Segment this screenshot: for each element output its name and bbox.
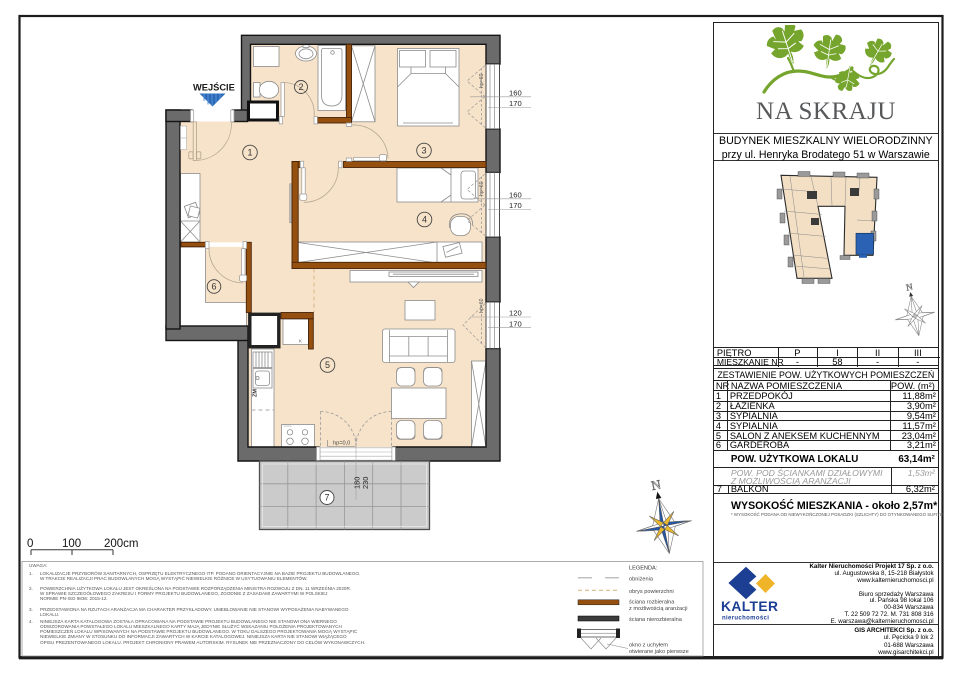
svg-text:170: 170 <box>509 99 522 108</box>
svg-text:100: 100 <box>62 538 81 550</box>
svg-text:N: N <box>650 476 663 493</box>
svg-text:hp=0,0: hp=0,0 <box>333 441 350 447</box>
svg-text:0: 0 <box>27 538 33 550</box>
svg-text:ZM: ZM <box>253 389 259 397</box>
svg-text:170: 170 <box>509 319 522 328</box>
svg-text:5: 5 <box>325 360 330 370</box>
svg-text:160: 160 <box>509 190 522 199</box>
svg-text:okno z uchyłem: okno z uchyłem <box>629 642 668 648</box>
svg-text:K: K <box>299 339 302 344</box>
svg-text:otwierane jako pierwsze: otwierane jako pierwsze <box>629 649 689 655</box>
svg-text:200cm: 200cm <box>104 538 139 550</box>
svg-text:6: 6 <box>211 282 216 292</box>
svg-text:N: N <box>905 281 914 292</box>
svg-text:120: 120 <box>509 309 522 318</box>
svg-text:nieruchomości: nieruchomości <box>722 615 769 621</box>
svg-text:obrys powierzchni: obrys powierzchni <box>629 589 674 595</box>
svg-text:160: 160 <box>509 88 522 97</box>
svg-text:230: 230 <box>361 477 370 489</box>
svg-text:hp=60: hp=60 <box>479 298 485 313</box>
svg-text:ściana rozbieralna: ściana rozbieralna <box>629 599 675 605</box>
svg-text:2: 2 <box>298 82 303 92</box>
svg-text:hp=60: hp=60 <box>479 73 485 88</box>
svg-text:obniżenia: obniżenia <box>629 576 654 582</box>
svg-text:WEJŚCIE: WEJŚCIE <box>193 82 235 93</box>
svg-text:4: 4 <box>422 215 427 225</box>
svg-text:170: 170 <box>509 201 522 210</box>
svg-text:1: 1 <box>247 148 252 158</box>
svg-text:7: 7 <box>324 493 329 503</box>
svg-text:3: 3 <box>421 146 426 156</box>
svg-text:ściana nierozbieralna: ściana nierozbieralna <box>629 617 683 623</box>
svg-text:z możliwością aranżacji: z możliwością aranżacji <box>629 606 687 612</box>
svg-text:hp=60: hp=60 <box>479 181 485 196</box>
svg-text:LEGENDA:: LEGENDA: <box>629 566 658 572</box>
